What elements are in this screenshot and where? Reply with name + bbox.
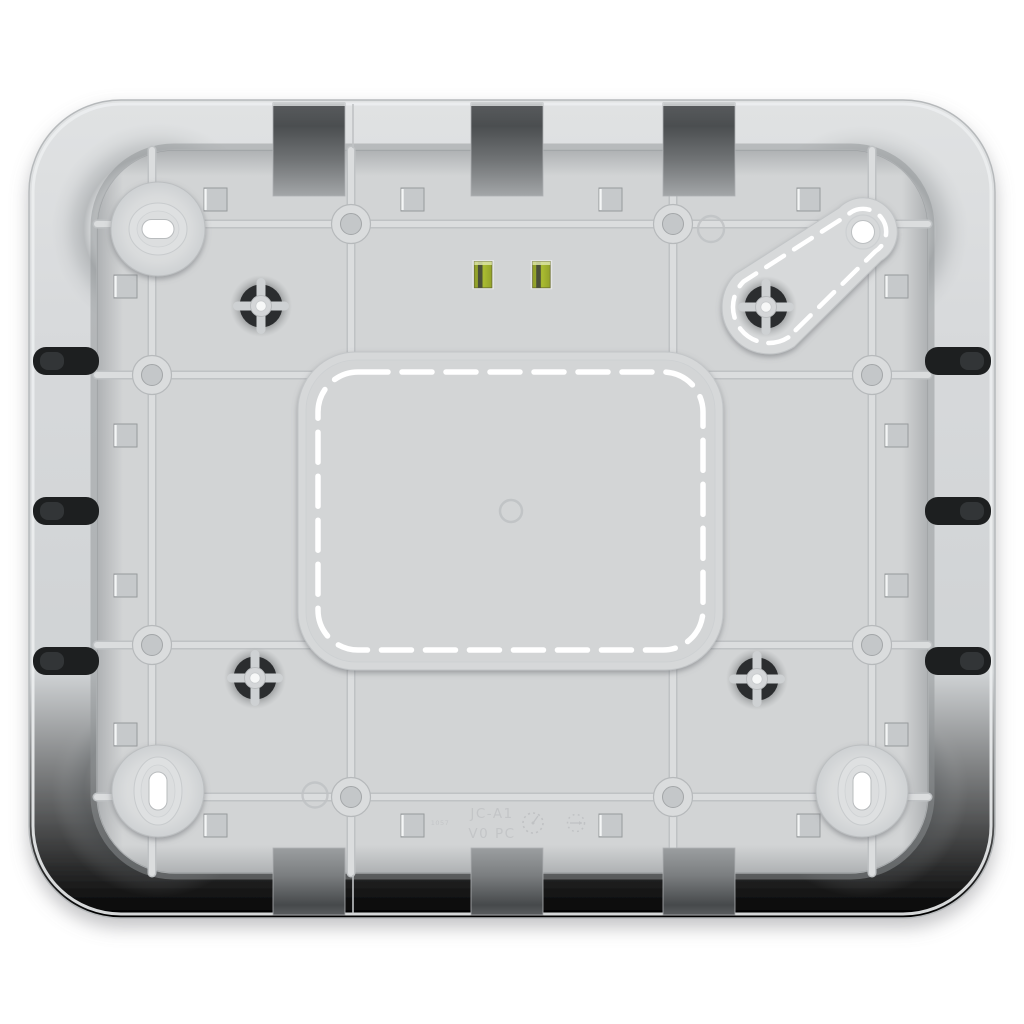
wall-notches-bottom bbox=[273, 848, 735, 915]
green-window-right bbox=[531, 260, 553, 289]
wall-notches-top bbox=[273, 103, 735, 196]
screw-boss-top-right bbox=[735, 276, 797, 338]
screw-boss-bottom-right bbox=[726, 648, 788, 710]
mold-code-text: 1057 bbox=[431, 819, 450, 827]
model-text: JC-A1 bbox=[469, 806, 513, 822]
wall-notch-bottom-3 bbox=[663, 848, 735, 915]
enclosure-scene: 1057 JC-A1 V0 PC bbox=[0, 0, 1024, 1024]
wall-notch-top-3 bbox=[663, 103, 735, 196]
mounting-keyhole-bottom-right bbox=[816, 745, 908, 837]
keyhole-slot bbox=[149, 772, 167, 810]
floor-ao-right bbox=[902, 150, 928, 873]
teardrop-mount-hole bbox=[852, 221, 875, 244]
wall-notch-bottom-2 bbox=[471, 848, 543, 915]
screw-boss-bottom-left bbox=[224, 647, 286, 709]
product-render: 1057 JC-A1 V0 PC bbox=[0, 0, 1024, 1024]
wall-notch-bottom-1 bbox=[273, 848, 345, 915]
mounting-keyhole-bottom-left bbox=[112, 745, 204, 837]
floor-ao-left bbox=[97, 150, 123, 873]
mounting-keyhole-top-left bbox=[111, 182, 205, 276]
material-text: V0 PC bbox=[468, 826, 515, 842]
screw-boss-top-left bbox=[230, 275, 292, 337]
wall-notch-top-1 bbox=[273, 103, 345, 196]
keyhole-slot bbox=[142, 220, 174, 239]
green-window-left bbox=[472, 260, 494, 289]
wall-notch-top-2 bbox=[471, 103, 543, 196]
center-knockout-pad bbox=[298, 352, 723, 670]
keyhole-slot bbox=[853, 772, 871, 810]
